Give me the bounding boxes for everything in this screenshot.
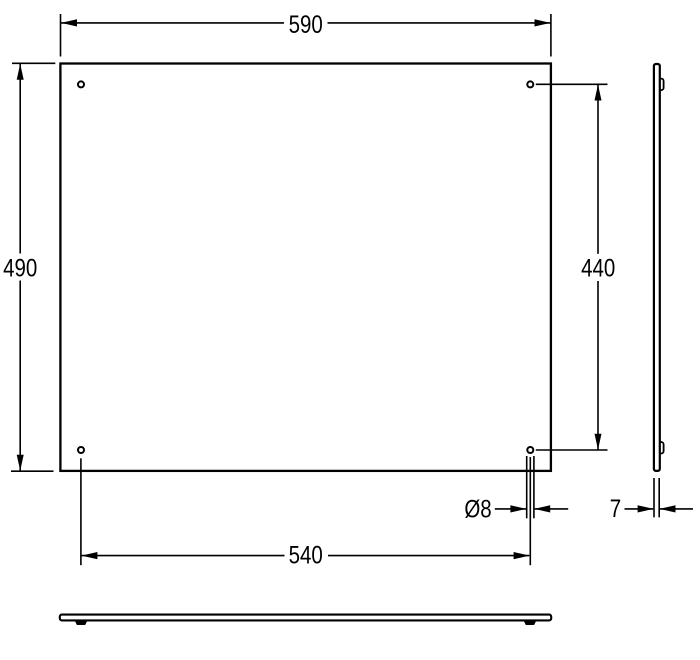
svg-text:7: 7 bbox=[610, 494, 621, 522]
svg-text:590: 590 bbox=[289, 10, 323, 38]
svg-text:490: 490 bbox=[3, 253, 37, 281]
svg-text:540: 540 bbox=[289, 541, 323, 569]
svg-text:440: 440 bbox=[581, 254, 615, 282]
svg-text:Ø8: Ø8 bbox=[464, 495, 491, 523]
